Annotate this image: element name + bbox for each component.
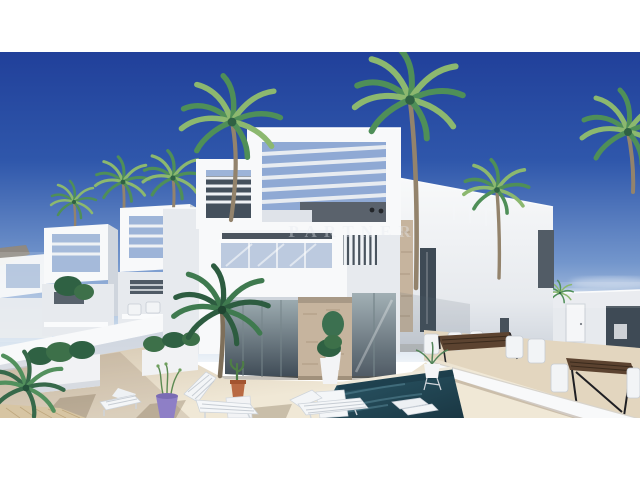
top-letterbox-band	[0, 0, 640, 52]
villa-render-photo: PARTNER	[0, 52, 640, 418]
bottom-letterbox-band	[0, 418, 640, 480]
ground-floor	[222, 293, 396, 380]
render-scene	[0, 52, 640, 418]
glass-balcony	[217, 230, 336, 300]
screenshot-root: PARTNER	[0, 0, 640, 480]
shrub-planter-2	[142, 332, 200, 376]
villa-far-2	[42, 224, 118, 336]
shutter-frame	[196, 159, 261, 229]
